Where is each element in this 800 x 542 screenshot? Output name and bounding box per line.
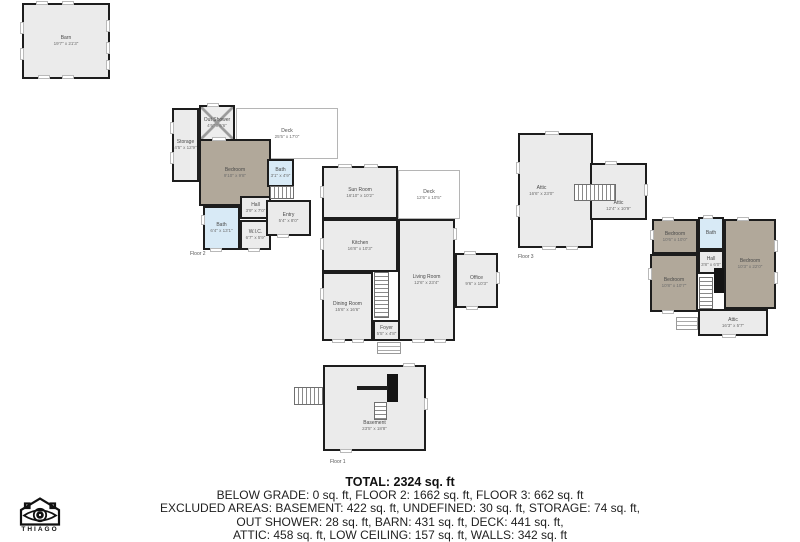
window-icon: [424, 398, 428, 410]
area-summary: TOTAL: 2324 sq. ft BELOW GRADE: 0 sq. ft…: [0, 476, 800, 542]
area-line-3: OUT SHOWER: 28 sq. ft, BARN: 431 sq. ft,…: [0, 516, 800, 529]
room-dimensions: 23'5" x 18'8": [362, 426, 387, 432]
chimney-icon: [387, 374, 398, 402]
floor-label-floor-1: Floor 1: [330, 459, 346, 465]
stairs-icon: [374, 402, 387, 420]
area-line-2: EXCLUDED AREAS: BASEMENT: 422 sq. ft, UN…: [0, 502, 800, 515]
window-icon: [340, 449, 352, 453]
floorplan-floor-1: Basement23'5" x 18'8"Floor 1: [0, 0, 800, 533]
thiago-logo: THIAGO: [16, 496, 64, 533]
stairs-icon: [294, 387, 323, 405]
interior-wall: [357, 386, 388, 390]
house-eye-icon: [18, 496, 62, 526]
room-name: Basement: [362, 420, 387, 426]
floorplan-canvas: Barn19'7" x 21'3"Deck25'5" x 17'0"Storag…: [0, 0, 800, 533]
window-icon: [403, 363, 415, 367]
room-label: Basement23'5" x 18'8": [362, 420, 387, 432]
logo-wordmark: THIAGO: [16, 526, 64, 533]
area-line-4: ATTIC: 458 sq. ft, LOW CEILING: 157 sq. …: [0, 529, 800, 542]
